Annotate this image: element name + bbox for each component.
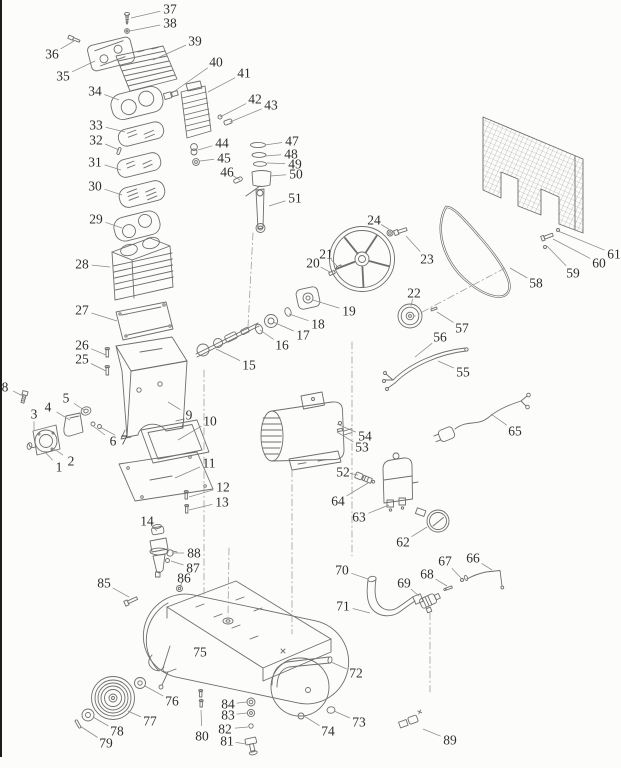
part-leader-80 xyxy=(201,710,202,726)
part-leader-24 xyxy=(381,225,390,231)
part-leader-23 xyxy=(406,236,420,252)
part-leader-26 xyxy=(91,349,106,355)
part-label-4: 4 xyxy=(45,400,52,415)
part-label-3: 3 xyxy=(31,407,38,422)
part-label-75: 75 xyxy=(193,645,207,660)
valve-plate-31-shape xyxy=(115,151,162,179)
part-label-19: 19 xyxy=(342,304,356,319)
pressure-gauge-shape xyxy=(415,508,449,532)
crankshaft-group-shape xyxy=(196,286,321,357)
bolts-80-shape xyxy=(199,690,204,708)
part-label-66: 66 xyxy=(466,551,480,566)
part-label-52: 52 xyxy=(336,465,350,480)
belt-guard-shape xyxy=(483,117,583,249)
part-leader-16 xyxy=(260,330,274,339)
part-label-20: 20 xyxy=(306,256,320,271)
base-plate-11-shape xyxy=(119,452,213,501)
part-leader-85 xyxy=(113,588,129,597)
part-leader-67 xyxy=(452,568,461,578)
part-leader-1 xyxy=(45,452,53,460)
part-label-72: 72 xyxy=(349,666,363,681)
part-label-69: 69 xyxy=(397,576,411,591)
part-leader-55 xyxy=(438,361,454,368)
part-label-34: 34 xyxy=(88,84,102,99)
part-leader-68 xyxy=(436,579,447,586)
part-leader-81 xyxy=(236,742,246,744)
part-label-55: 55 xyxy=(456,365,470,380)
part-label-65: 65 xyxy=(508,424,522,439)
part-leader-32 xyxy=(105,144,119,150)
part-label-31: 31 xyxy=(88,155,102,170)
part-label-85: 85 xyxy=(97,576,111,591)
part-leader-27 xyxy=(92,313,118,321)
finned-cylinder-shape xyxy=(181,81,211,138)
part-label-9: 9 xyxy=(186,408,193,423)
part-leader-40 xyxy=(172,68,208,93)
part-label-32: 32 xyxy=(89,133,103,148)
part-label-24: 24 xyxy=(367,213,381,228)
valve-plate-30-shape xyxy=(117,179,166,210)
part-label-82: 82 xyxy=(218,722,232,737)
part-label-37: 37 xyxy=(163,2,177,17)
part-leader-57 xyxy=(437,312,454,323)
wheel-group-shape xyxy=(75,677,146,729)
part-leader-56 xyxy=(415,343,432,357)
gasket-34-shape xyxy=(109,84,166,122)
part-label-87: 87 xyxy=(186,561,200,576)
part-label-73: 73 xyxy=(352,715,366,730)
part-leader-66 xyxy=(482,563,493,570)
part-label-79: 79 xyxy=(99,736,113,751)
part-label-29: 29 xyxy=(89,212,103,227)
cylinder-block-shape xyxy=(112,236,173,300)
part-leader-36 xyxy=(61,41,74,49)
part-leader-71 xyxy=(353,609,370,614)
part-label-41: 41 xyxy=(237,66,251,81)
part-leader-79 xyxy=(80,726,98,738)
part-leader-63 xyxy=(368,505,389,513)
part-leader-87 xyxy=(171,561,184,565)
part-leader-42 xyxy=(220,104,246,117)
part-labels-layer: 1234567891011121314151617181920212223242… xyxy=(2,2,621,751)
part-label-71: 71 xyxy=(336,599,350,614)
part-leader-49 xyxy=(267,163,285,164)
gasket-27-shape xyxy=(116,302,173,340)
part-leader-65 xyxy=(491,414,507,425)
part-label-77: 77 xyxy=(143,714,157,729)
part-label-63: 63 xyxy=(352,510,366,525)
part-label-14: 14 xyxy=(140,514,154,529)
part-leader-61 xyxy=(558,231,605,250)
air-filter-housing-shape xyxy=(87,36,136,72)
part-leader-38 xyxy=(130,25,160,31)
part-label-33: 33 xyxy=(89,118,103,133)
part-leader-47 xyxy=(265,143,282,146)
part-label-61: 61 xyxy=(607,247,621,262)
part-leader-69 xyxy=(411,589,419,596)
part-leader-50 xyxy=(270,175,286,176)
part-leader-64 xyxy=(347,483,368,496)
part-label-1: 1 xyxy=(56,460,63,475)
bolt-85-shape xyxy=(124,596,138,606)
part-label-45: 45 xyxy=(217,151,231,166)
part-label-59: 59 xyxy=(566,266,580,281)
part-leader-19 xyxy=(313,300,339,308)
part-leader-70 xyxy=(351,573,368,579)
part-leader-73 xyxy=(334,711,350,718)
part-label-11: 11 xyxy=(203,456,216,471)
gasket-29-shape xyxy=(112,209,162,243)
bolts-12-13-shape xyxy=(184,491,189,514)
part-leader-2 xyxy=(53,448,63,455)
part-label-58: 58 xyxy=(529,276,543,291)
part-label-50: 50 xyxy=(289,167,303,182)
part-leader-82 xyxy=(235,727,248,728)
part-label-13: 13 xyxy=(215,495,229,510)
cylinder-head-cover-shape xyxy=(116,46,177,91)
part-label-70: 70 xyxy=(335,563,349,578)
part-label-22: 22 xyxy=(407,286,421,301)
part-label-89: 89 xyxy=(443,733,457,748)
part-leader-53 xyxy=(337,432,353,442)
pressure-switch-shape xyxy=(383,453,418,511)
part-label-56: 56 xyxy=(433,330,447,345)
exploded-diagram-svg: 1234567891011121314151617181920212223242… xyxy=(0,0,621,768)
part-leader-5 xyxy=(74,403,84,410)
centerlines xyxy=(204,233,505,692)
part-leader-15 xyxy=(216,349,240,361)
part-leader-37 xyxy=(131,11,160,18)
part-label-25: 25 xyxy=(75,352,89,367)
part-label-38: 38 xyxy=(163,16,177,31)
part-leader-4 xyxy=(57,412,70,420)
part-label-6: 6 xyxy=(110,434,117,449)
part-label-28: 28 xyxy=(75,257,89,272)
part-leader-48 xyxy=(265,155,281,156)
part-label-64: 64 xyxy=(331,494,345,509)
valve-plate-33-shape xyxy=(117,120,166,148)
part-label-68: 68 xyxy=(420,567,434,582)
part-label-7: 7 xyxy=(121,433,128,448)
part-label-74: 74 xyxy=(321,724,335,739)
part-leader-25 xyxy=(91,364,106,372)
part-leader-9 xyxy=(168,402,181,410)
part-leader-76 xyxy=(145,686,163,696)
part-label-8: 8 xyxy=(2,380,9,395)
part-label-27: 27 xyxy=(75,303,89,318)
part-label-35: 35 xyxy=(56,69,70,84)
part-leader-72 xyxy=(331,662,347,669)
part-label-44: 44 xyxy=(215,136,229,151)
part-leader-6 xyxy=(93,426,105,435)
intake-flange-group-shape xyxy=(20,391,102,455)
part-leader-33 xyxy=(106,127,125,132)
drive-belt-shape xyxy=(441,207,510,297)
part-label-51: 51 xyxy=(288,191,302,206)
part-leader-58 xyxy=(510,268,527,278)
part-label-43: 43 xyxy=(264,98,278,113)
parts-diagram-page: 1234567891011121314151617181920212223242… xyxy=(0,0,621,768)
part-label-23: 23 xyxy=(420,252,434,267)
part-label-16: 16 xyxy=(275,338,289,353)
part-leader-51 xyxy=(269,201,285,206)
part-label-84: 84 xyxy=(221,697,235,712)
part-label-36: 36 xyxy=(45,47,59,62)
part-label-76: 76 xyxy=(165,694,179,709)
part-leader-11 xyxy=(175,467,200,478)
part-label-12: 12 xyxy=(216,480,230,495)
part-leader-20 xyxy=(321,267,330,272)
part-leader-18 xyxy=(289,314,309,321)
part-leader-8 xyxy=(13,391,23,396)
part-leader-13 xyxy=(189,504,212,510)
part-leader-62 xyxy=(412,527,428,537)
part-label-57: 57 xyxy=(455,321,469,336)
part-label-15: 15 xyxy=(242,358,256,373)
part-leader-43 xyxy=(230,109,262,122)
part-label-26: 26 xyxy=(75,338,89,353)
outlet-piping-shape xyxy=(298,571,504,728)
part-label-60: 60 xyxy=(592,256,606,271)
part-label-88: 88 xyxy=(187,546,201,561)
part-leader-30 xyxy=(105,189,123,195)
fitting-40-shape xyxy=(163,90,178,100)
part-leader-28 xyxy=(92,265,110,267)
part-label-46: 46 xyxy=(220,165,234,180)
part-leader-31 xyxy=(105,165,121,170)
part-label-5: 5 xyxy=(63,391,70,406)
pin-32-shape xyxy=(117,147,122,154)
part-leader-83 xyxy=(237,713,247,714)
part-leader-74 xyxy=(304,716,320,726)
part-label-21: 21 xyxy=(319,247,333,262)
part-leader-84 xyxy=(237,702,247,703)
part-label-67: 67 xyxy=(438,554,452,569)
part-leader-89 xyxy=(423,729,441,736)
part-label-39: 39 xyxy=(188,34,202,49)
part-leader-45 xyxy=(200,159,214,161)
screw-37-38-shape xyxy=(125,12,130,33)
part-leader-59 xyxy=(547,246,566,266)
part-leader-41 xyxy=(208,78,235,92)
part-label-40: 40 xyxy=(209,55,223,70)
part-label-10: 10 xyxy=(203,414,217,429)
electric-motor-shape xyxy=(261,392,352,470)
part-label-2: 2 xyxy=(68,454,75,469)
screw-36-shape xyxy=(68,35,80,43)
part-leader-52 xyxy=(350,473,358,475)
part-leader-44 xyxy=(198,146,212,150)
part-label-54: 54 xyxy=(358,429,372,444)
part-label-17: 17 xyxy=(296,328,310,343)
part-leader-77 xyxy=(128,711,141,717)
part-label-30: 30 xyxy=(88,179,102,194)
part-label-42: 42 xyxy=(248,92,262,107)
part-label-62: 62 xyxy=(396,535,410,550)
fitting-52-64-shape xyxy=(355,472,376,485)
part-label-80: 80 xyxy=(195,729,209,744)
part-leader-17 xyxy=(273,322,294,331)
part-label-18: 18 xyxy=(311,317,325,332)
